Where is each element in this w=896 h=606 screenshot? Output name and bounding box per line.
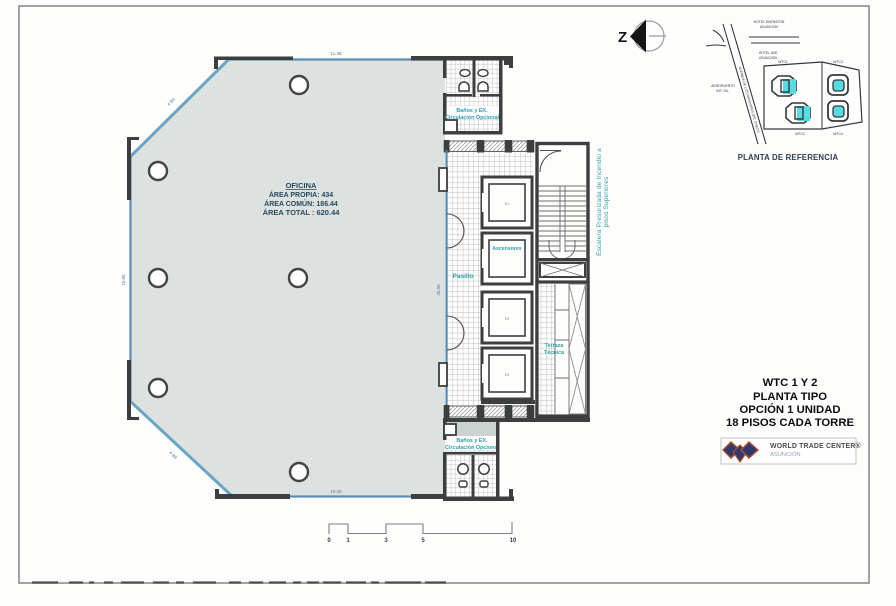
svg-text:pisos Superiores: pisos Superiores xyxy=(603,177,610,228)
svg-text:ÁREA TOTAL : 620.44: ÁREA TOTAL : 620.44 xyxy=(263,208,341,217)
svg-text:PLANTA DE REFERENCIA: PLANTA DE REFERENCIA xyxy=(738,153,839,162)
svg-text:WORLD TRADE CENTER®: WORLD TRADE CENTER® xyxy=(770,442,861,450)
svg-text:Ascensores: Ascensores xyxy=(492,246,522,252)
svg-text:ÁREA COMÚN: 186.44: ÁREA COMÚN: 186.44 xyxy=(264,199,338,208)
svg-text:OPCIÓN 1 UNIDAD: OPCIÓN 1 UNIDAD xyxy=(739,403,840,416)
svg-text:E4: E4 xyxy=(505,373,509,377)
svg-text:10: 10 xyxy=(510,538,517,544)
svg-text:ÁREA PROPIA: 434: ÁREA PROPIA: 434 xyxy=(269,190,333,199)
svg-text:11.38: 11.38 xyxy=(331,51,342,56)
svg-text:18 PISOS CADA TORRE: 18 PISOS CADA TORRE xyxy=(726,417,855,429)
svg-text:Circulación Opcional: Circulación Opcional xyxy=(445,445,499,451)
svg-text:Escalera Presurizada de Incend: Escalera Presurizada de Incendio a xyxy=(596,148,603,256)
svg-text:Técnica: Técnica xyxy=(544,350,565,356)
svg-text:WTC3: WTC3 xyxy=(833,60,843,64)
svg-text:WTC4: WTC4 xyxy=(833,132,843,136)
svg-text:HOTEL AVE: HOTEL AVE xyxy=(759,51,778,55)
svg-text:Baños y EX.: Baños y EX. xyxy=(456,108,488,114)
svg-text:OFICINA: OFICINA xyxy=(286,181,317,190)
svg-text:16.38: 16.38 xyxy=(330,489,342,494)
svg-text:15.05: 15.05 xyxy=(121,274,126,286)
svg-text:ASUNCION: ASUNCION xyxy=(760,25,778,29)
svg-text:E3: E3 xyxy=(505,317,509,321)
svg-text:Baños y EX.: Baños y EX. xyxy=(456,438,488,444)
svg-text:WTC2: WTC2 xyxy=(795,132,805,136)
svg-text:36.06: 36.06 xyxy=(436,284,441,296)
svg-text:INT. SIL.: INT. SIL. xyxy=(716,89,729,93)
svg-text:ASUNCIÓN: ASUNCIÓN xyxy=(770,451,801,458)
svg-text:AEROPUERTO: AEROPUERTO xyxy=(711,84,735,88)
svg-text:Z: Z xyxy=(618,29,627,46)
svg-text:Pasillo: Pasillo xyxy=(453,273,474,280)
svg-text:Terraza: Terraza xyxy=(545,343,565,349)
svg-text:WTC1: WTC1 xyxy=(778,60,788,64)
svg-text:E1: E1 xyxy=(505,202,509,206)
svg-text:PLANTA TIPO: PLANTA TIPO xyxy=(753,391,827,403)
svg-text:ASUNCION: ASUNCION xyxy=(759,56,777,60)
svg-text:HOTEL SHERATON: HOTEL SHERATON xyxy=(754,20,785,24)
svg-text:WTC 1 Y 2: WTC 1 Y 2 xyxy=(763,377,818,389)
